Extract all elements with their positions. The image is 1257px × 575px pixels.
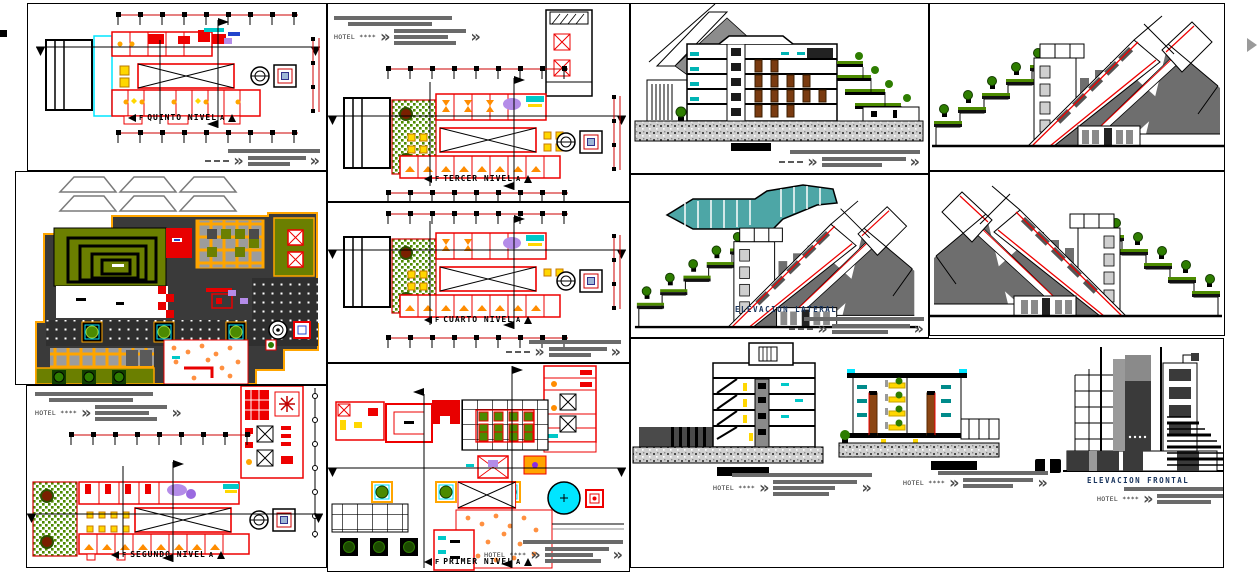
long-section-drawing [631,4,928,173]
panel-elevation-2 [929,171,1225,336]
site-plan-drawing [16,172,326,384]
chevron-icon: » [910,157,920,167]
section-cut-icon [228,114,236,122]
floor-label-segundo: F SEGUNDO NIVEL A [111,550,225,559]
panel-quinto-nivel: F QUINTO NIVEL A » » [27,3,327,171]
section-cut-icon [424,175,432,183]
chevron-icon: » [1143,494,1153,504]
chevron-icon: » [1037,478,1047,488]
section-letter: A [516,175,521,183]
panel-site-plan [15,171,327,385]
panel-primer-nivel: F PRIMER NIVEL A HOTEL **** » » [327,363,630,572]
hotel-rating-label: HOTEL **** [713,484,755,492]
ground-hatch [635,121,923,141]
dark-planters [340,538,418,556]
dash-mark [789,328,813,330]
panel-cuarto-nivel: F CUARTO NIVEL A » » [327,202,630,363]
section-cut-icon [111,551,119,559]
elevation-label-frontal: ELEVACION FRONTAL [1087,476,1189,485]
title-block: HOTEL **** » » [334,16,481,45]
dash-mark [205,160,229,162]
chevron-icon: » [949,478,959,488]
title-block: HOTEL **** » » [713,473,872,496]
chevron-icon: » [380,32,390,42]
title-block: » » [205,149,320,166]
title-block: » » [789,317,924,334]
lobby-cluster [466,456,546,478]
floor-label-quinto: F QUINTO NIVEL A [128,113,236,122]
section-letter: A [220,114,225,122]
cuarto-nivel-plan-drawing [328,203,629,362]
section-letter: F [435,558,440,566]
section-cut-icon [424,558,432,566]
parking-canopies [60,177,236,211]
section-tower-drawing [633,343,823,476]
elevation-mirrored-drawing [930,172,1224,335]
dash-mark [506,351,530,353]
edge-mark [0,30,7,37]
stair-tower [546,10,592,96]
stepped-fan [1167,417,1223,465]
hotel-rating-label: HOTEL **** [1097,495,1139,503]
terrace-grid [332,504,408,532]
panel-elevacion-lateral: ELEVACION LATERAL » » [630,174,929,338]
elevation-drawing [930,4,1224,170]
edge-fragment [1247,38,1257,52]
panel-bottom-elevations: HOTEL **** » » HOTEL **** » » ELEVACION … [630,338,1224,568]
chevron-icon: » [613,550,623,560]
elevation-label-lateral: ELEVACION LATERAL [735,305,837,314]
panel-section-long: » » [630,3,929,174]
upper-wing [241,386,303,478]
panel-segundo-nivel: F SEGUNDO NIVEL A HOTEL **** » » [26,385,327,568]
floor-label-cuarto: F CUARTO NIVEL A [424,315,532,324]
section-letter: F [122,551,127,559]
chevron-icon: » [310,156,320,166]
elevacion-frontal-drawing [1063,347,1223,471]
section-rooms-drawing [839,369,999,470]
chevron-icon: » [470,32,480,42]
section-cut-icon [524,316,532,324]
floor-label-tercer: F TERCER NIVEL A [424,174,532,183]
section-cut-icon [424,316,432,324]
chevron-icon: » [81,408,91,418]
title-block: HOTEL **** » » [1097,487,1224,504]
redacted-bar [35,392,153,396]
chevron-icon: » [759,483,769,493]
section-letter: A [209,551,214,559]
hotel-rating-label: HOTEL **** [334,33,376,41]
floor-title: CUARTO NIVEL [443,315,513,324]
title-block: » » [506,340,621,357]
hotel-rating-label: HOTEL **** [484,551,526,559]
pool-canopy-shape [667,185,837,229]
floor-title: QUINTO NIVEL [147,113,217,122]
chevron-icon: » [817,324,827,334]
panel-tercer-nivel: F TERCER NIVEL A HOTEL **** » » [327,3,630,202]
floor-title: SEGUNDO NIVEL [130,550,206,559]
redacted-bar [1124,487,1224,491]
chevron-icon: » [233,156,243,166]
bottom-elevations-drawing [631,339,1223,567]
section-letter: F [139,114,144,122]
lawn-trees [52,370,126,384]
title-block: HOTEL **** » » [903,471,1048,488]
panel-elevation-1 [929,3,1225,171]
section-cut-icon [128,114,136,122]
redacted-bar [523,540,623,544]
chevron-icon: » [530,550,540,560]
section-letter: F [435,175,440,183]
floor-title: TERCER NIVEL [443,174,513,183]
chevron-icon: » [171,408,181,418]
title-block: » » [779,150,920,167]
quinto-nivel-plan-drawing [28,4,326,170]
redacted-bar [334,16,452,20]
lobby-core [198,28,240,44]
section-cut-icon [524,175,532,183]
chevron-icon: » [534,347,544,357]
hotel-rating-label: HOTEL **** [903,479,945,487]
hotel-rating-label: HOTEL **** [35,409,77,417]
redacted-bar [732,473,872,477]
section-cut-icon [217,551,225,559]
chevron-icon: » [611,347,621,357]
chevron-icon: » [914,324,924,334]
chevron-icon: » [861,483,871,493]
dash-mark [779,161,803,163]
chevron-icon: » [807,157,817,167]
upper-wing [544,366,596,452]
title-block: HOTEL **** » » [35,392,182,421]
title-block: HOTEL **** » » [484,540,623,563]
section-letter: A [516,316,521,324]
architectural-sheet: F QUINTO NIVEL A » » [0,0,1257,575]
section-letter: F [435,316,440,324]
